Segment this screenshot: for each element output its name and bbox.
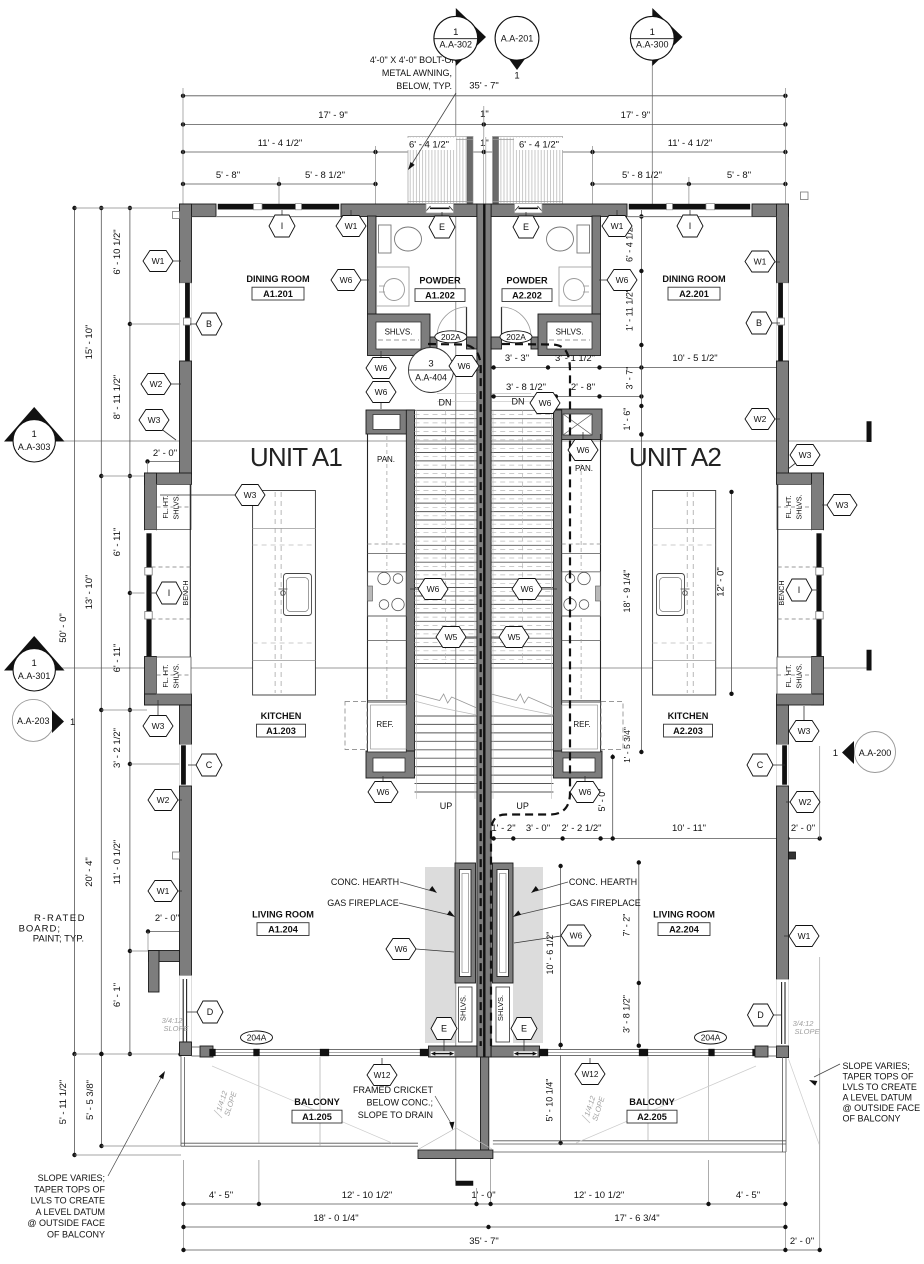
svg-text:E: E: [523, 222, 529, 232]
svg-text:SHLVS.: SHLVS.: [795, 494, 804, 519]
svg-text:REF.: REF.: [573, 720, 590, 729]
svg-text:W6: W6: [579, 787, 592, 797]
svg-text:4' - 5": 4' - 5": [209, 1190, 233, 1201]
svg-text:PAINT; TYP.: PAINT; TYP.: [33, 934, 84, 945]
svg-text:3' - 3": 3' - 3": [505, 353, 529, 364]
svg-text:DN: DN: [512, 397, 525, 407]
svg-text:A LEVEL DATUM: A LEVEL DATUM: [843, 1093, 913, 1103]
svg-text:PAN.: PAN.: [377, 455, 395, 464]
svg-text:FL. HT.: FL. HT.: [161, 495, 170, 518]
svg-text:A.A-303: A.A-303: [18, 442, 51, 452]
svg-text:202A: 202A: [441, 332, 461, 342]
svg-text:TAPER TOPS OF: TAPER TOPS OF: [843, 1072, 915, 1082]
svg-text:2' - 2 1/2": 2' - 2 1/2": [561, 823, 601, 834]
svg-text:GAS FIREPLACE: GAS FIREPLACE: [569, 898, 641, 908]
svg-text:DN: DN: [439, 398, 452, 408]
svg-text:FL. HT.: FL. HT.: [784, 664, 793, 687]
svg-text:1: 1: [650, 27, 655, 38]
svg-text:18' - 0 1/4": 18' - 0 1/4": [313, 1213, 358, 1224]
svg-text:35' - 7": 35' - 7": [469, 81, 498, 92]
svg-text:18' - 9 1/4": 18' - 9 1/4": [622, 570, 632, 613]
svg-text:I: I: [281, 221, 284, 231]
svg-text:W2: W2: [157, 795, 170, 805]
svg-text:A2.205: A2.205: [637, 1112, 667, 1122]
svg-text:5' - 8 1/2": 5' - 8 1/2": [622, 170, 662, 181]
svg-text:W6: W6: [377, 787, 390, 797]
svg-text:W6: W6: [521, 584, 534, 594]
svg-text:E: E: [441, 1024, 447, 1034]
svg-text:LIVING ROOM: LIVING ROOM: [653, 910, 715, 920]
svg-text:12' - 0": 12' - 0": [716, 567, 727, 596]
svg-text:1' - 0": 1' - 0": [471, 1190, 495, 1201]
svg-text:W6: W6: [570, 931, 583, 941]
svg-text:SLOPE: SLOPE: [163, 1024, 189, 1033]
svg-text:1: 1: [32, 429, 37, 440]
svg-text:E: E: [439, 222, 445, 232]
svg-text:1: 1: [514, 71, 519, 82]
svg-text:UP: UP: [440, 801, 453, 811]
svg-text:3: 3: [428, 359, 433, 370]
svg-text:W6: W6: [539, 398, 552, 408]
svg-text:BALCONY: BALCONY: [629, 1097, 674, 1107]
svg-text:B: B: [756, 318, 762, 328]
svg-text:A.A-203: A.A-203: [17, 716, 50, 726]
svg-text:6' - 4 1/2": 6' - 4 1/2": [519, 140, 559, 151]
svg-text:5' - 8": 5' - 8": [216, 170, 240, 181]
svg-text:3' - 8 1/2": 3' - 8 1/2": [622, 995, 632, 1033]
svg-text:204A: 204A: [247, 1033, 267, 1043]
svg-text:13' - 10": 13' - 10": [84, 575, 95, 610]
svg-text:SLOPE TO DRAIN: SLOPE TO DRAIN: [358, 1110, 433, 1120]
svg-text:A LEVEL DATUM: A LEVEL DATUM: [35, 1207, 105, 1217]
svg-text:DINING ROOM: DINING ROOM: [662, 274, 726, 284]
svg-text:CONC. HEARTH: CONC. HEARTH: [569, 877, 637, 887]
svg-text:KITCHEN: KITCHEN: [261, 711, 302, 721]
svg-text:C: C: [757, 760, 764, 770]
svg-text:11' - 4 1/2": 11' - 4 1/2": [258, 138, 303, 149]
svg-text:1: 1: [833, 748, 838, 759]
svg-text:1: 1: [32, 658, 37, 669]
svg-text:I: I: [168, 588, 171, 598]
svg-text:SHLVS.: SHLVS.: [496, 995, 505, 1021]
svg-text:SLOPE VARIES;: SLOPE VARIES;: [38, 1173, 105, 1183]
svg-text:A1.205: A1.205: [302, 1112, 332, 1122]
svg-text:W5: W5: [508, 632, 521, 642]
svg-text:W12: W12: [374, 1071, 391, 1080]
svg-text:W3: W3: [152, 721, 165, 731]
svg-text:6' - 11": 6' - 11": [112, 528, 123, 557]
svg-text:A2.203: A2.203: [673, 726, 703, 736]
svg-text:METAL AWNING,: METAL AWNING,: [382, 68, 452, 78]
svg-text:R-RATED: R-RATED: [34, 913, 86, 924]
svg-text:LVLS TO CREATE: LVLS TO CREATE: [31, 1196, 105, 1206]
svg-text:D: D: [207, 1007, 214, 1017]
svg-text:E: E: [521, 1024, 527, 1034]
svg-text:W1: W1: [611, 221, 624, 231]
svg-text:2' - 0": 2' - 0": [790, 1236, 814, 1247]
svg-text:5' - 8": 5' - 8": [727, 170, 751, 181]
svg-text:W3: W3: [244, 490, 257, 500]
svg-text:A1.203: A1.203: [266, 726, 296, 736]
svg-text:50' - 0": 50' - 0": [58, 613, 69, 642]
svg-text:B: B: [206, 319, 212, 329]
svg-text:W1: W1: [157, 886, 170, 896]
svg-text:W12: W12: [582, 1070, 599, 1079]
svg-text:A.A-404: A.A-404: [415, 373, 447, 383]
svg-text:17' - 9": 17' - 9": [318, 110, 347, 121]
svg-text:1' - 11 1/2": 1' - 11 1/2": [625, 289, 635, 331]
svg-text:5' - 10 1/4": 5' - 10 1/4": [545, 1079, 555, 1122]
svg-text:3' - 2 1/2": 3' - 2 1/2": [112, 728, 123, 768]
svg-text:17' - 9": 17' - 9": [621, 110, 650, 121]
svg-text:BELOW CONC.;: BELOW CONC.;: [366, 1098, 433, 1108]
svg-text:POWDER: POWDER: [419, 276, 461, 286]
svg-text:W6: W6: [340, 275, 353, 285]
svg-text:SLOPE: SLOPE: [794, 1027, 820, 1036]
svg-text:15' - 10": 15' - 10": [84, 325, 95, 360]
svg-text:10' - 11": 10' - 11": [672, 823, 706, 834]
svg-text:FRAMED CRICKET: FRAMED CRICKET: [353, 1085, 434, 1095]
svg-text:GAS FIREPLACE: GAS FIREPLACE: [327, 898, 399, 908]
svg-text:1": 1": [480, 109, 489, 120]
svg-text:204A: 204A: [701, 1033, 721, 1043]
svg-text:LIVING ROOM: LIVING ROOM: [252, 910, 314, 920]
svg-text:SHLVS.: SHLVS.: [556, 328, 584, 337]
svg-text:A2.204: A2.204: [669, 924, 700, 934]
svg-text:REF.: REF.: [376, 720, 393, 729]
svg-text:3' - 7": 3' - 7": [625, 367, 635, 390]
svg-text:11' - 0 1/2": 11' - 0 1/2": [112, 840, 123, 885]
svg-text:A2.202: A2.202: [512, 290, 542, 300]
svg-text:5' - 11 1/2": 5' - 11 1/2": [58, 1080, 69, 1125]
svg-text:SHLVS.: SHLVS.: [459, 995, 468, 1021]
svg-text:12' - 10 1/2": 12' - 10 1/2": [342, 1190, 393, 1201]
svg-text:2' - 0": 2' - 0": [791, 823, 815, 834]
svg-text:POWDER: POWDER: [506, 276, 548, 286]
svg-text:SLOPE VARIES;: SLOPE VARIES;: [843, 1061, 910, 1071]
svg-text:7' - 2": 7' - 2": [622, 914, 632, 937]
svg-text:3' - 0": 3' - 0": [526, 823, 550, 834]
svg-text:4' - 5": 4' - 5": [736, 1190, 760, 1201]
svg-text:PAN.: PAN.: [575, 464, 593, 473]
svg-text:SHLVS.: SHLVS.: [795, 663, 804, 688]
svg-text:1: 1: [70, 717, 75, 728]
svg-text:A1.201: A1.201: [263, 289, 293, 299]
svg-text:20' - 4": 20' - 4": [84, 857, 95, 886]
svg-text:FL. HT.: FL. HT.: [161, 664, 170, 687]
svg-text:8' - 11 1/2": 8' - 11 1/2": [112, 375, 123, 420]
svg-text:CONC. HEARTH: CONC. HEARTH: [331, 877, 399, 887]
svg-text:1' - 2": 1' - 2": [491, 823, 515, 834]
svg-text:2' - 8": 2' - 8": [571, 382, 595, 393]
svg-text:W2: W2: [150, 379, 163, 389]
svg-text:W1: W1: [798, 931, 811, 941]
svg-text:W1: W1: [754, 257, 767, 267]
svg-text:1' - 6": 1' - 6": [622, 408, 632, 431]
svg-text:W3: W3: [148, 415, 161, 425]
svg-text:KITCHEN: KITCHEN: [668, 711, 709, 721]
svg-text:W6: W6: [577, 445, 590, 455]
svg-text:I: I: [689, 221, 692, 231]
svg-text:1": 1": [480, 138, 489, 149]
svg-text:W6: W6: [427, 584, 440, 594]
svg-text:A.A-302: A.A-302: [440, 40, 473, 50]
svg-text:A.A-201: A.A-201: [501, 34, 534, 44]
svg-text:W5: W5: [445, 632, 458, 642]
svg-text:FL. HT.: FL. HT.: [784, 495, 793, 518]
svg-text:5' - 8 1/2": 5' - 8 1/2": [305, 170, 345, 181]
svg-text:W3: W3: [798, 726, 811, 736]
svg-text:5' - 5 3/8": 5' - 5 3/8": [85, 1080, 96, 1120]
svg-text:TAPER TOPS OF: TAPER TOPS OF: [34, 1184, 106, 1194]
svg-text:3' - 8 1/2": 3' - 8 1/2": [506, 382, 546, 393]
svg-text:2' - 0": 2' - 0": [153, 448, 177, 459]
svg-text:W3: W3: [799, 450, 812, 460]
svg-text:11' - 4 1/2": 11' - 4 1/2": [668, 138, 713, 149]
svg-text:A1.202: A1.202: [425, 290, 455, 300]
svg-text:LVLS TO CREATE: LVLS TO CREATE: [843, 1082, 917, 1092]
svg-text:C: C: [206, 760, 213, 770]
svg-text:A.A-301: A.A-301: [18, 671, 51, 681]
svg-text:W1: W1: [152, 256, 165, 266]
svg-text:@ OUTSIDE FACE: @ OUTSIDE FACE: [843, 1103, 921, 1113]
svg-text:OF BALCONY: OF BALCONY: [843, 1114, 901, 1124]
svg-text:17' - 6 3/4": 17' - 6 3/4": [614, 1213, 659, 1224]
svg-text:W1: W1: [345, 221, 358, 231]
svg-text:6' - 4 1/2": 6' - 4 1/2": [409, 140, 449, 151]
svg-text:10' - 5 1/2": 10' - 5 1/2": [672, 353, 717, 364]
svg-text:D: D: [757, 1010, 764, 1020]
svg-text:1: 1: [453, 27, 458, 38]
svg-text:BELOW, TYP.: BELOW, TYP.: [396, 81, 452, 91]
svg-text:A1.204: A1.204: [268, 924, 299, 934]
svg-text:UP: UP: [516, 801, 529, 811]
svg-text:6' - 10 1/2": 6' - 10 1/2": [112, 229, 123, 274]
svg-text:W3: W3: [836, 500, 849, 510]
svg-text:A.A-300: A.A-300: [636, 40, 669, 50]
svg-text:SHLVS.: SHLVS.: [172, 494, 181, 519]
svg-text:6' - 1": 6' - 1": [112, 983, 123, 1007]
svg-text:SHLVS.: SHLVS.: [172, 663, 181, 688]
svg-text:UNIT A2: UNIT A2: [629, 442, 722, 472]
svg-text:OF BALCONY: OF BALCONY: [47, 1230, 105, 1240]
svg-text:6' - 11": 6' - 11": [112, 644, 123, 673]
svg-text:A.A-200: A.A-200: [859, 748, 892, 758]
svg-text:W6: W6: [375, 363, 388, 373]
svg-text:2' - 0": 2' - 0": [155, 913, 179, 924]
svg-text:UNIT A1: UNIT A1: [250, 442, 343, 472]
svg-text:W6: W6: [458, 361, 471, 371]
svg-text:DINING ROOM: DINING ROOM: [246, 274, 310, 284]
svg-text:1' - 5 3/4": 1' - 5 3/4": [622, 727, 632, 763]
svg-text:W6: W6: [375, 387, 388, 397]
svg-text:I: I: [798, 585, 801, 595]
svg-text:12' - 10 1/2": 12' - 10 1/2": [574, 1190, 625, 1201]
svg-text:W6: W6: [395, 944, 408, 954]
svg-text:A2.201: A2.201: [679, 289, 709, 299]
svg-text:SHLVS.: SHLVS.: [385, 328, 413, 337]
svg-text:BALCONY: BALCONY: [294, 1097, 339, 1107]
svg-text:@ OUTSIDE FACE: @ OUTSIDE FACE: [27, 1218, 105, 1228]
svg-text:W2: W2: [754, 414, 767, 424]
svg-text:W6: W6: [616, 275, 629, 285]
svg-text:BENCH: BENCH: [777, 580, 786, 605]
svg-text:W2: W2: [799, 797, 812, 807]
svg-text:202A: 202A: [506, 332, 526, 342]
svg-text:35' - 7": 35' - 7": [469, 1236, 498, 1247]
